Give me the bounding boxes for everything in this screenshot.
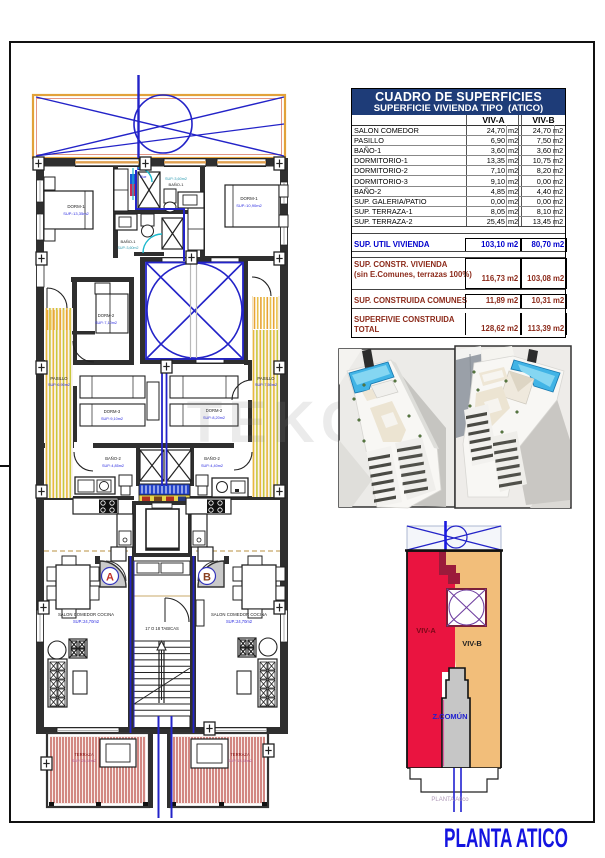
svg-text:SUP.:24,70m2: SUP.:24,70m2 [226, 619, 253, 624]
svg-text:BAÑO-2: BAÑO-2 [204, 456, 220, 461]
svg-text:DORM-1: DORM-1 [240, 196, 258, 201]
svg-text:SALON COMEDOR COCINA: SALON COMEDOR COCINA [211, 612, 267, 617]
svg-text:SUP.:9,10m2: SUP.:9,10m2 [101, 417, 123, 421]
svg-text:SUP.:7,10m2: SUP.:7,10m2 [95, 321, 117, 325]
svg-text:Blue: Blue [140, 175, 147, 179]
svg-text:SUP.:25,45m2: SUP.:25,45m2 [72, 759, 96, 763]
svg-text:DORM-2: DORM-2 [98, 313, 115, 318]
svg-text:SUP.:3,60m2: SUP.:3,60m2 [118, 246, 139, 250]
svg-text:SALON COMEDOR COCINA: SALON COMEDOR COCINA [58, 612, 114, 617]
svg-text:B: B [203, 572, 211, 584]
svg-text:SUP.:13,45m2: SUP.:13,45m2 [228, 759, 252, 763]
svg-text:PLANTA Atico: PLANTA Atico [431, 797, 469, 803]
svg-text:BAÑO-1: BAÑO-1 [169, 182, 185, 187]
svg-text:BAÑO-1: BAÑO-1 [121, 239, 137, 244]
svg-text:SUP.:4,85m2: SUP.:4,85m2 [102, 464, 124, 468]
svg-text:PLANTA ATICO: PLANTA ATICO [444, 823, 568, 853]
svg-text:TERRAZA: TERRAZA [230, 752, 250, 757]
svg-text:SUP.:3,60m2: SUP.:3,60m2 [165, 177, 187, 181]
svg-text:SUP.:10,90m2: SUP.:10,90m2 [236, 203, 262, 208]
svg-text:SUP.:24,70m2: SUP.:24,70m2 [73, 619, 100, 624]
svg-text:SUP.:6,90m2: SUP.:6,90m2 [48, 383, 70, 387]
svg-text:VIV-B: VIV-B [462, 639, 482, 648]
svg-text:Z.COMÚN: Z.COMÚN [433, 712, 468, 721]
svg-text:DORM-1: DORM-1 [67, 204, 85, 209]
svg-text:DORM-3: DORM-3 [104, 409, 121, 414]
svg-text:A: A [106, 572, 114, 584]
svg-text:SUP.:13,35m2: SUP.:13,35m2 [63, 211, 89, 216]
svg-text:SUP.:7,50m2: SUP.:7,50m2 [255, 383, 277, 387]
svg-text:PASILLO: PASILLO [257, 376, 275, 381]
svg-text:VIV-A: VIV-A [416, 626, 436, 635]
svg-text:BAÑO-2: BAÑO-2 [105, 456, 121, 461]
svg-text:PASILLO: PASILLO [50, 376, 68, 381]
svg-text:TERRAZA: TERRAZA [74, 752, 94, 757]
svg-text:SUP.:4,40m2: SUP.:4,40m2 [201, 464, 223, 468]
svg-text:17 O 18 TABICAS: 17 O 18 TABICAS [145, 626, 179, 631]
